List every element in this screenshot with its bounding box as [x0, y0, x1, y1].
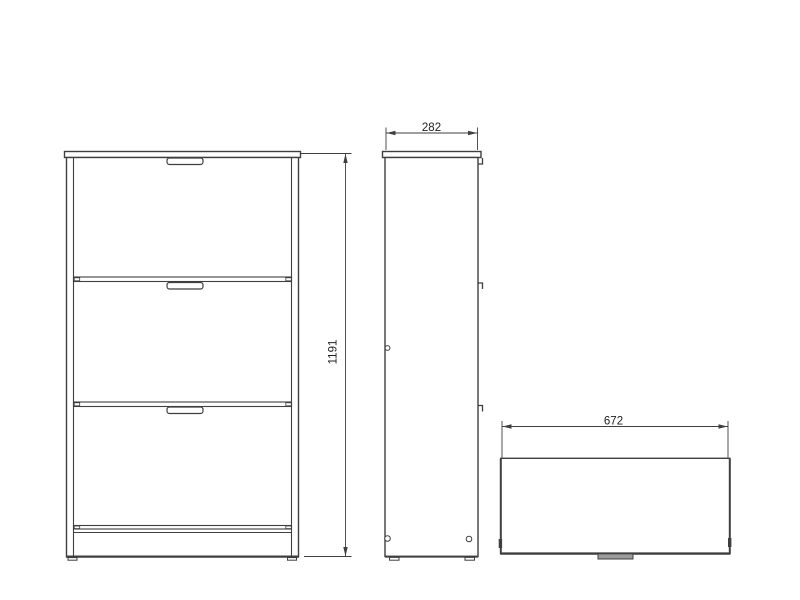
bottom-rail-left-cap [74, 526, 80, 529]
depth-arrow-right [468, 131, 477, 135]
side-cam-hole-bottom-back [466, 536, 472, 542]
side-back-foot [465, 557, 475, 560]
drawer-3-handle [167, 407, 203, 414]
bottom-rail-right-cap [286, 526, 292, 529]
top-view-handle-tab [598, 554, 633, 559]
divider-2 [74, 402, 292, 407]
depth-arrow-left [386, 131, 395, 135]
side-cam-hole-middle [385, 346, 390, 351]
divider-1-left-cap [74, 278, 80, 281]
front-right-foot [288, 558, 297, 561]
side-front-foot [390, 557, 400, 560]
bottom-rail [74, 526, 292, 530]
dimension-depth: 282 [386, 122, 478, 150]
drawer-2-handle [167, 283, 203, 290]
top-view-right-hinge-mark [728, 538, 731, 547]
divider-2-right-cap [286, 403, 292, 406]
front-left-foot [68, 558, 77, 561]
top-view [499, 458, 732, 559]
side-top-panel [383, 152, 482, 158]
divider-2-left-cap [74, 403, 80, 406]
side-view [383, 152, 483, 561]
divider-1-right-cap [286, 278, 292, 281]
divider-1 [74, 277, 292, 282]
technical-drawing-canvas: 1191 282 672 [0, 0, 800, 600]
drawing-svg: 1191 282 672 [0, 0, 800, 600]
width-arrow-right [719, 424, 728, 428]
top-view-outline [501, 458, 730, 554]
top-view-left-hinge-mark [499, 539, 502, 548]
side-body-outline [385, 158, 478, 557]
front-body-outline [67, 158, 299, 557]
height-arrow-up [343, 154, 347, 163]
front-top-panel [65, 152, 301, 158]
height-arrow-down [343, 547, 347, 556]
width-dimension-label: 672 [604, 416, 623, 428]
side-cam-hole-bottom-front [385, 536, 391, 542]
dimension-width: 672 [502, 416, 728, 458]
drawer-1-handle [167, 158, 203, 165]
height-dimension-label: 1191 [328, 340, 340, 365]
depth-dimension-label: 282 [422, 122, 441, 134]
width-arrow-left [502, 424, 511, 428]
dimension-height: 1191 [301, 154, 352, 557]
front-view [65, 152, 301, 561]
